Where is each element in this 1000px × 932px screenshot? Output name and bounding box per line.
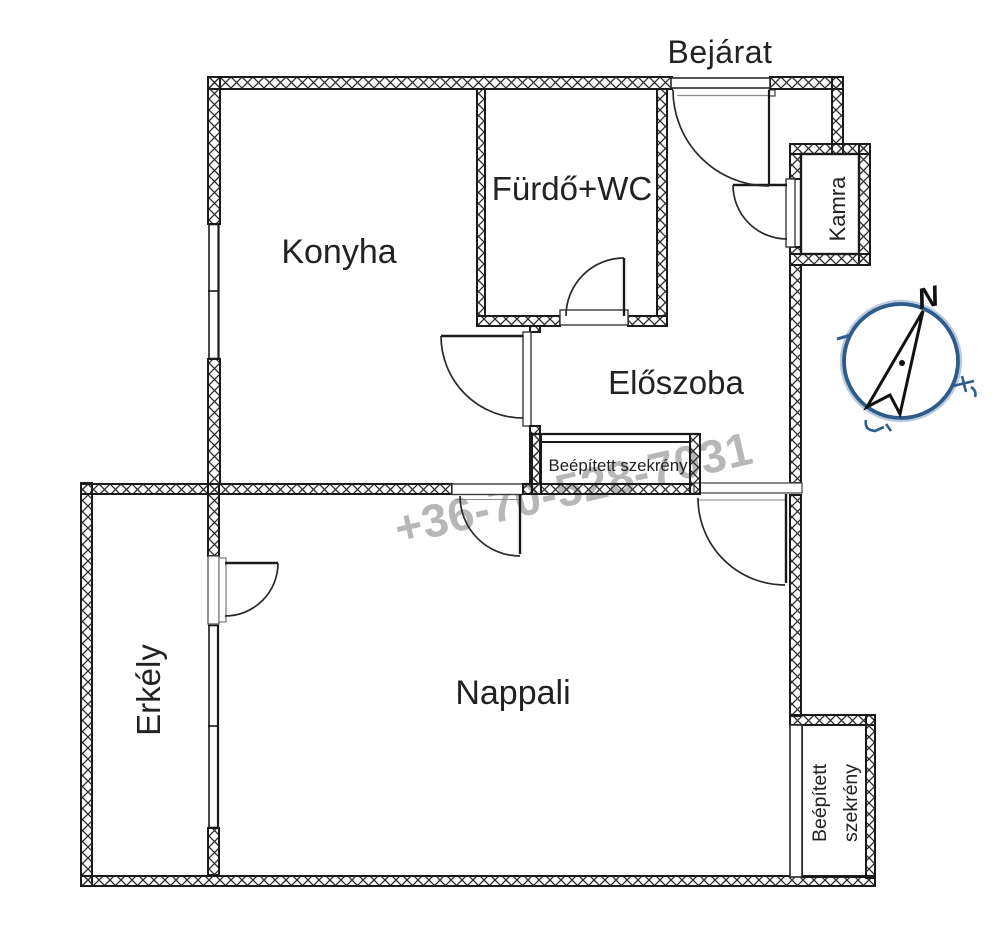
svg-text:szekrény: szekrény: [840, 764, 862, 842]
svg-text:Beépített: Beépített: [809, 763, 831, 842]
svg-text:Konyha: Konyha: [281, 233, 396, 271]
svg-text:Beépített szekrény: Beépített szekrény: [549, 456, 689, 475]
svg-text:Erkély: Erkély: [130, 644, 167, 736]
svg-text:Nappali: Nappali: [455, 674, 570, 712]
svg-text:Fürdő+WC: Fürdő+WC: [492, 170, 652, 207]
svg-text:Előszoba: Előszoba: [608, 364, 744, 401]
svg-text:Bejárat: Bejárat: [668, 34, 773, 70]
svg-text:Kamra: Kamra: [825, 176, 850, 242]
